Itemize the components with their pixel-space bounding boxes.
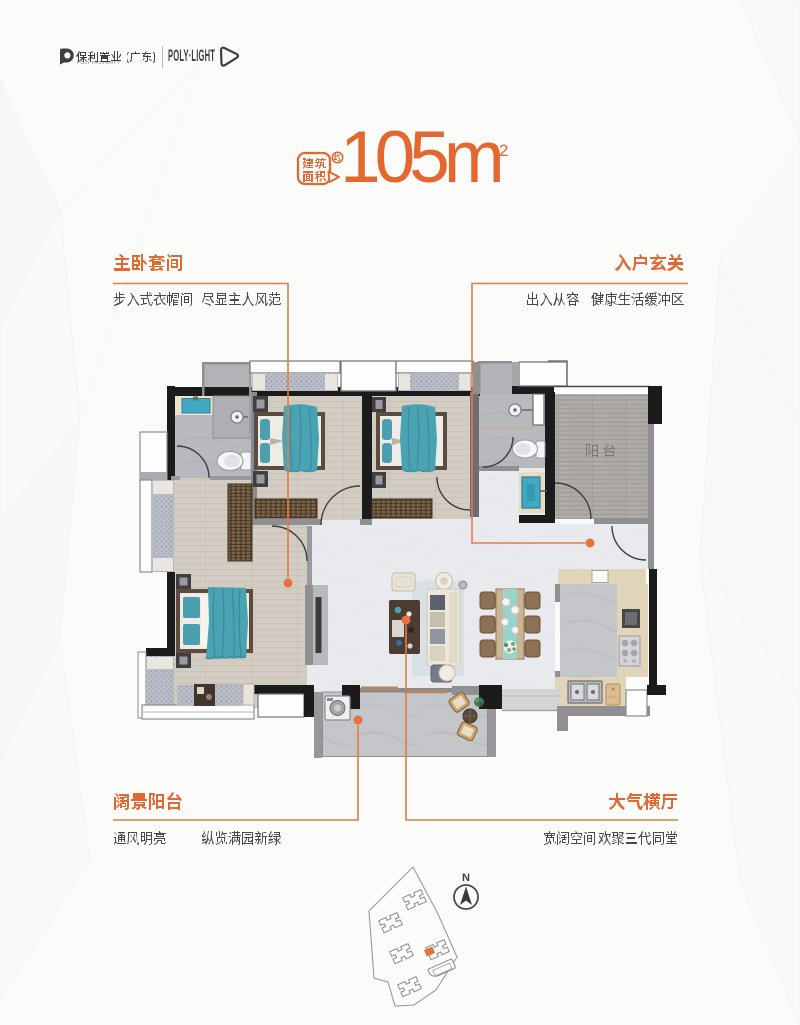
svg-text:N: N xyxy=(462,872,470,884)
